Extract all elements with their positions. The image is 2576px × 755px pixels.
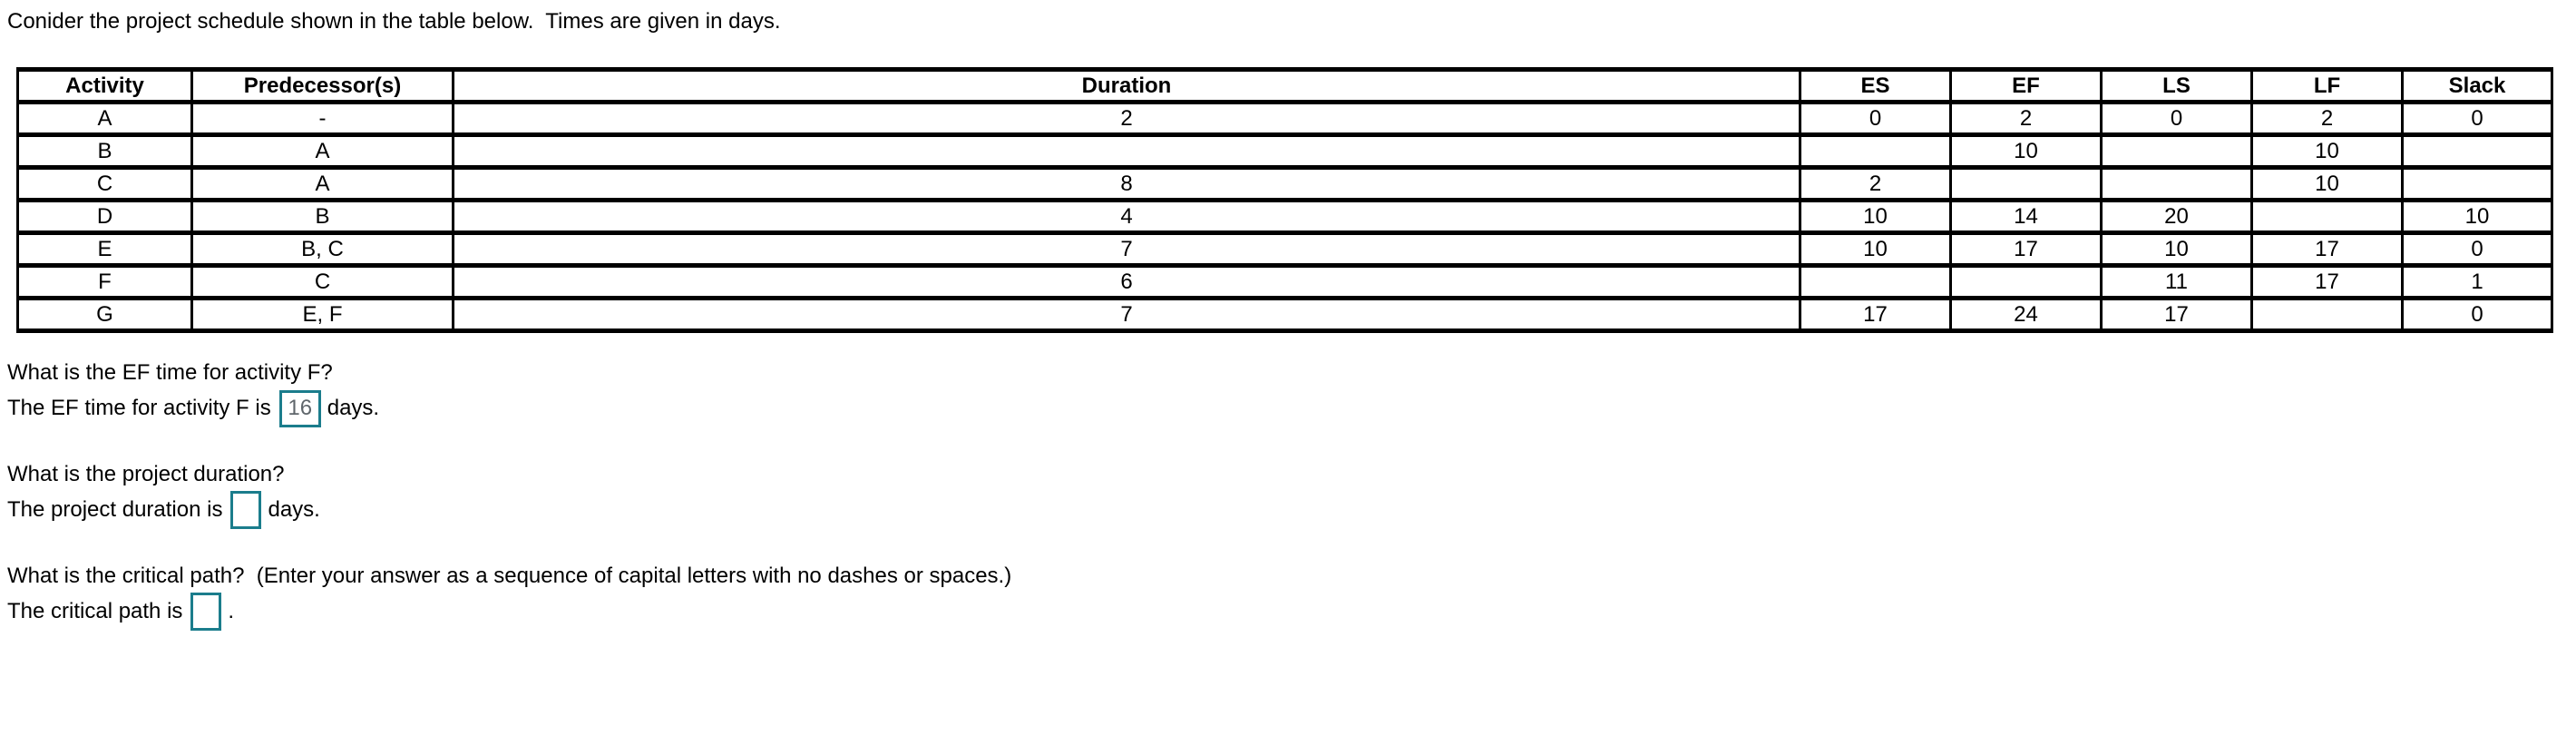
- q2-prompt: What is the project duration?: [7, 463, 2576, 486]
- cell-lf: [2252, 201, 2403, 233]
- cell-slack: 0: [2403, 299, 2552, 331]
- cell-ef: 24: [1951, 299, 2102, 331]
- cell-duration: [454, 135, 1800, 168]
- cell-activity: D: [18, 201, 192, 233]
- table-row: B A 10 10: [18, 135, 2552, 168]
- col-header-lf: LF: [2252, 70, 2403, 103]
- cell-duration: 7: [454, 233, 1800, 266]
- q1-answer-line: The EF time for activity F is 16 days.: [7, 387, 2576, 430]
- cell-ef: 17: [1951, 233, 2102, 266]
- table-row: C A 8 2 10: [18, 168, 2552, 201]
- cell-lf: 2: [2252, 103, 2403, 135]
- q1-answer-suffix: days.: [327, 396, 379, 421]
- col-header-predecessors: Predecessor(s): [192, 70, 454, 103]
- cell-slack: 0: [2403, 103, 2552, 135]
- cell-lf: 10: [2252, 135, 2403, 168]
- q3-prompt: What is the critical path? (Enter your a…: [7, 564, 2576, 588]
- col-header-ef: EF: [1951, 70, 2102, 103]
- q2-answer-prefix: The project duration is: [7, 497, 222, 523]
- q1-prompt: What is the EF time for activity F?: [7, 361, 2576, 385]
- col-header-activity: Activity: [18, 70, 192, 103]
- cell-activity: E: [18, 233, 192, 266]
- cell-slack: 10: [2403, 201, 2552, 233]
- cell-es: [1800, 266, 1951, 299]
- cell-ef: 2: [1951, 103, 2102, 135]
- cell-activity: B: [18, 135, 192, 168]
- cell-predecessors: A: [192, 135, 454, 168]
- q2-answer-line: The project duration is days.: [7, 488, 2576, 532]
- cell-lf: 10: [2252, 168, 2403, 201]
- cell-activity: A: [18, 103, 192, 135]
- cell-duration: 6: [454, 266, 1800, 299]
- cell-slack: [2403, 168, 2552, 201]
- cell-ef: [1951, 168, 2102, 201]
- cell-es: [1800, 135, 1951, 168]
- q1-answer-prefix: The EF time for activity F is: [7, 396, 271, 421]
- col-header-ls: LS: [2102, 70, 2252, 103]
- cell-es: 10: [1800, 201, 1951, 233]
- cell-ls: [2102, 168, 2252, 201]
- schedule-table: Activity Predecessor(s) Duration ES EF L…: [16, 67, 2553, 333]
- cell-predecessors: B: [192, 201, 454, 233]
- cell-ls: 0: [2102, 103, 2252, 135]
- cell-predecessors: C: [192, 266, 454, 299]
- cell-ls: 11: [2102, 266, 2252, 299]
- quiz-page: Conider the project schedule shown in th…: [0, 0, 2576, 755]
- q2-answer-suffix: days.: [268, 497, 319, 523]
- cell-slack: [2403, 135, 2552, 168]
- q3-answer-suffix: .: [228, 599, 234, 624]
- cell-duration: 7: [454, 299, 1800, 331]
- cell-predecessors: A: [192, 168, 454, 201]
- table-row: D B 4 10 14 20 10: [18, 201, 2552, 233]
- q3-answer-line: The critical path is .: [7, 590, 2576, 633]
- cell-ls: 17: [2102, 299, 2252, 331]
- cell-predecessors: E, F: [192, 299, 454, 331]
- cell-predecessors: -: [192, 103, 454, 135]
- cell-es: 17: [1800, 299, 1951, 331]
- intro-text: Conider the project schedule shown in th…: [0, 0, 2576, 34]
- col-header-slack: Slack: [2403, 70, 2552, 103]
- project-duration-input[interactable]: [230, 491, 261, 529]
- cell-lf: [2252, 299, 2403, 331]
- critical-path-input[interactable]: [190, 593, 221, 631]
- cell-lf: 17: [2252, 266, 2403, 299]
- col-header-duration: Duration: [454, 70, 1800, 103]
- cell-ls: 20: [2102, 201, 2252, 233]
- table-row: G E, F 7 17 24 17 0: [18, 299, 2552, 331]
- ef-activity-f-input[interactable]: 16: [279, 390, 321, 427]
- cell-ls: 10: [2102, 233, 2252, 266]
- cell-es: 2: [1800, 168, 1951, 201]
- cell-duration: 4: [454, 201, 1800, 233]
- cell-duration: 2: [454, 103, 1800, 135]
- cell-activity: G: [18, 299, 192, 331]
- cell-lf: 17: [2252, 233, 2403, 266]
- col-header-es: ES: [1800, 70, 1951, 103]
- cell-ef: 10: [1951, 135, 2102, 168]
- cell-ls: [2102, 135, 2252, 168]
- questions-section: What is the EF time for activity F? The …: [7, 361, 2576, 633]
- cell-es: 10: [1800, 233, 1951, 266]
- cell-predecessors: B, C: [192, 233, 454, 266]
- q3-answer-prefix: The critical path is: [7, 599, 182, 624]
- table-header-row: Activity Predecessor(s) Duration ES EF L…: [18, 70, 2552, 103]
- cell-activity: C: [18, 168, 192, 201]
- table-row: E B, C 7 10 17 10 17 0: [18, 233, 2552, 266]
- cell-ef: [1951, 266, 2102, 299]
- cell-activity: F: [18, 266, 192, 299]
- cell-es: 0: [1800, 103, 1951, 135]
- table-row: F C 6 11 17 1: [18, 266, 2552, 299]
- cell-duration: 8: [454, 168, 1800, 201]
- cell-slack: 0: [2403, 233, 2552, 266]
- cell-ef: 14: [1951, 201, 2102, 233]
- cell-slack: 1: [2403, 266, 2552, 299]
- table-row: A - 2 0 2 0 2 0: [18, 103, 2552, 135]
